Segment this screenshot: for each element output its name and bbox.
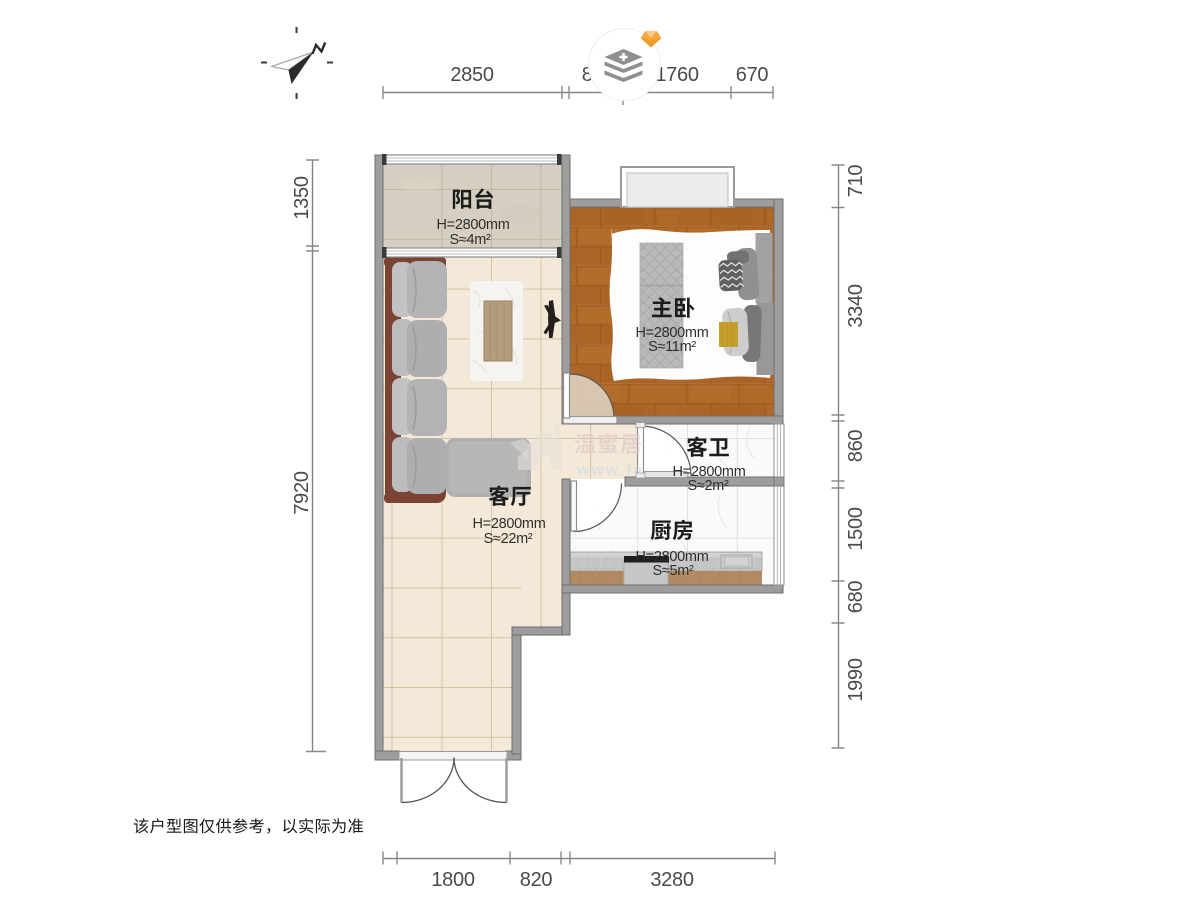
- svg-text:H=2800mm: H=2800mm: [473, 516, 546, 532]
- svg-text:710: 710: [845, 165, 867, 198]
- svg-text:S≈11m²: S≈11m²: [648, 339, 696, 355]
- svg-text:S≈4m²: S≈4m²: [449, 232, 491, 248]
- svg-text:www.fa: www.fa: [576, 462, 644, 479]
- svg-text:2850: 2850: [450, 64, 493, 86]
- svg-text:820: 820: [520, 869, 553, 891]
- svg-text:1350: 1350: [291, 176, 313, 219]
- svg-text:3340: 3340: [845, 284, 867, 327]
- svg-text:1990: 1990: [845, 658, 867, 701]
- svg-text:3280: 3280: [650, 869, 693, 891]
- svg-text:680: 680: [845, 581, 867, 614]
- svg-text:670: 670: [736, 64, 769, 86]
- svg-text:7920: 7920: [291, 471, 313, 514]
- svg-text:1760: 1760: [655, 64, 698, 86]
- svg-text:860: 860: [845, 430, 867, 463]
- svg-text:H=2800mm: H=2800mm: [437, 217, 510, 233]
- svg-text:S≈22m²: S≈22m²: [484, 531, 533, 547]
- svg-text:S≈2m²: S≈2m²: [687, 478, 729, 494]
- svg-text:1500: 1500: [845, 507, 867, 550]
- svg-text:1800: 1800: [431, 869, 474, 891]
- svg-text:S≈5m²: S≈5m²: [652, 563, 694, 579]
